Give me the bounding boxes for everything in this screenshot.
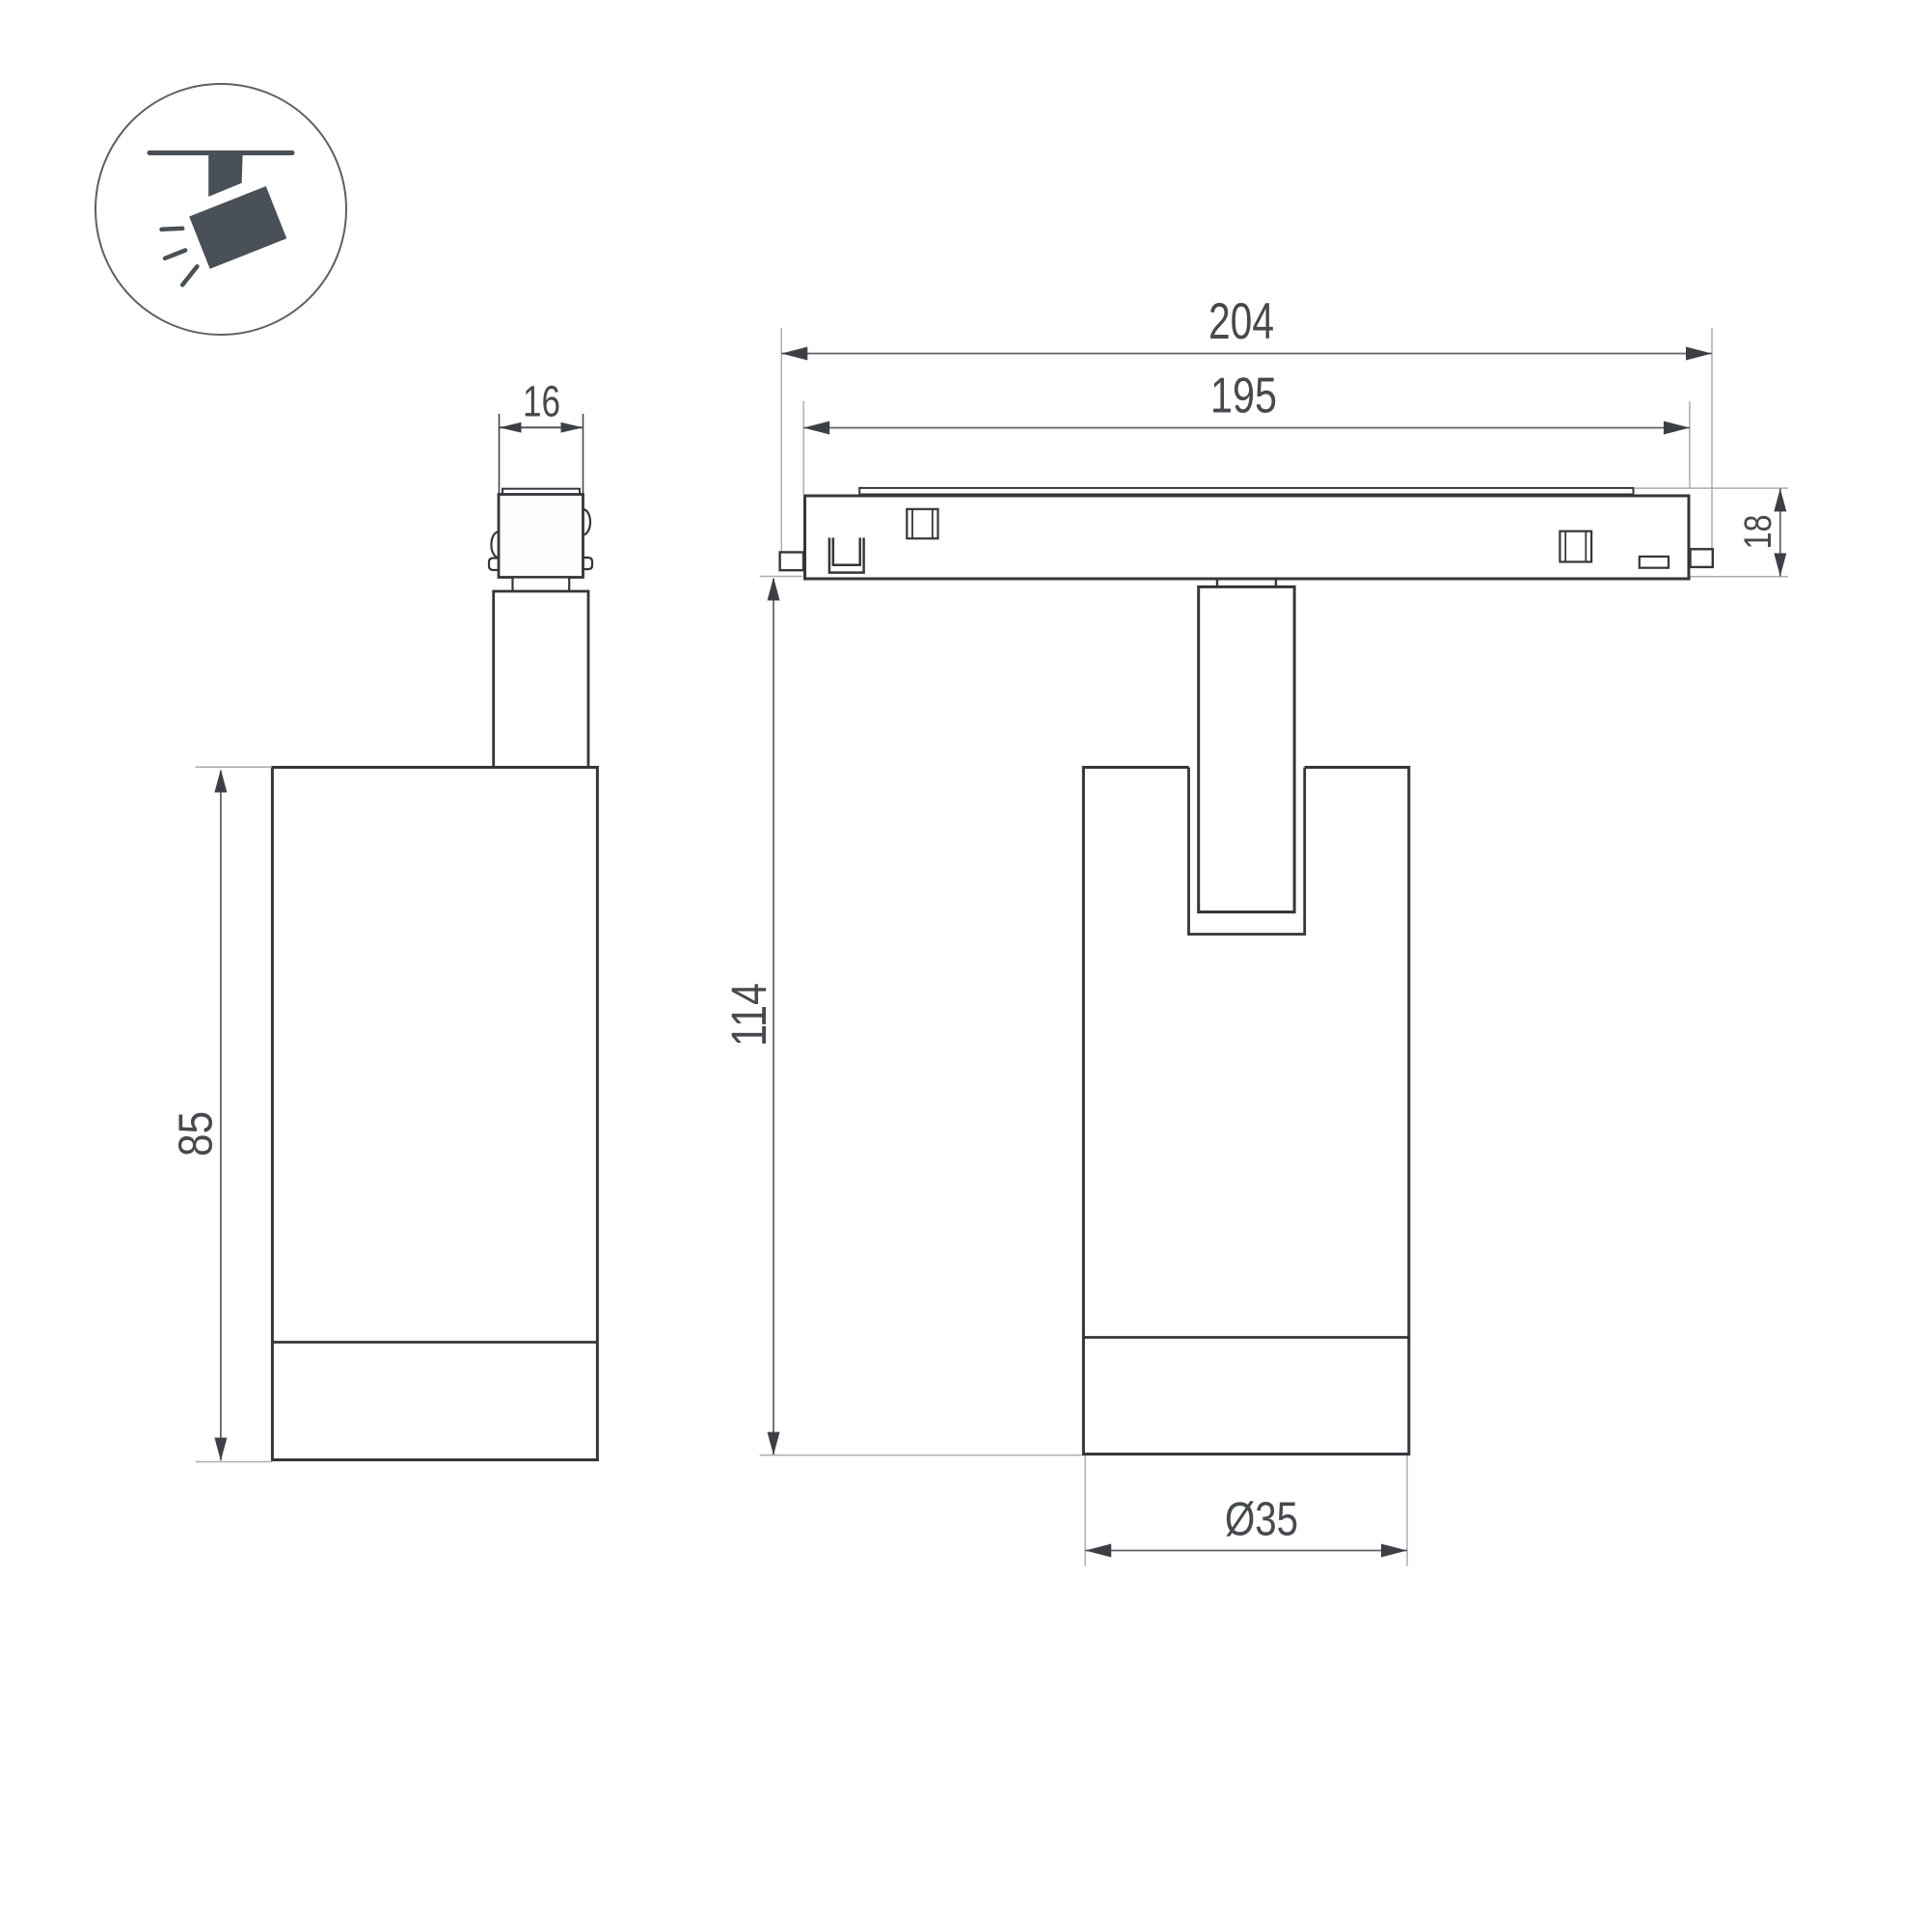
svg-text:114: 114 bbox=[721, 983, 776, 1047]
svg-text:Ø35: Ø35 bbox=[1225, 1494, 1298, 1546]
svg-text:18: 18 bbox=[1737, 515, 1779, 550]
svg-text:85: 85 bbox=[171, 1111, 223, 1156]
svg-text:204: 204 bbox=[1208, 293, 1274, 350]
svg-text:16: 16 bbox=[523, 377, 560, 426]
svg-text:195: 195 bbox=[1210, 368, 1277, 424]
